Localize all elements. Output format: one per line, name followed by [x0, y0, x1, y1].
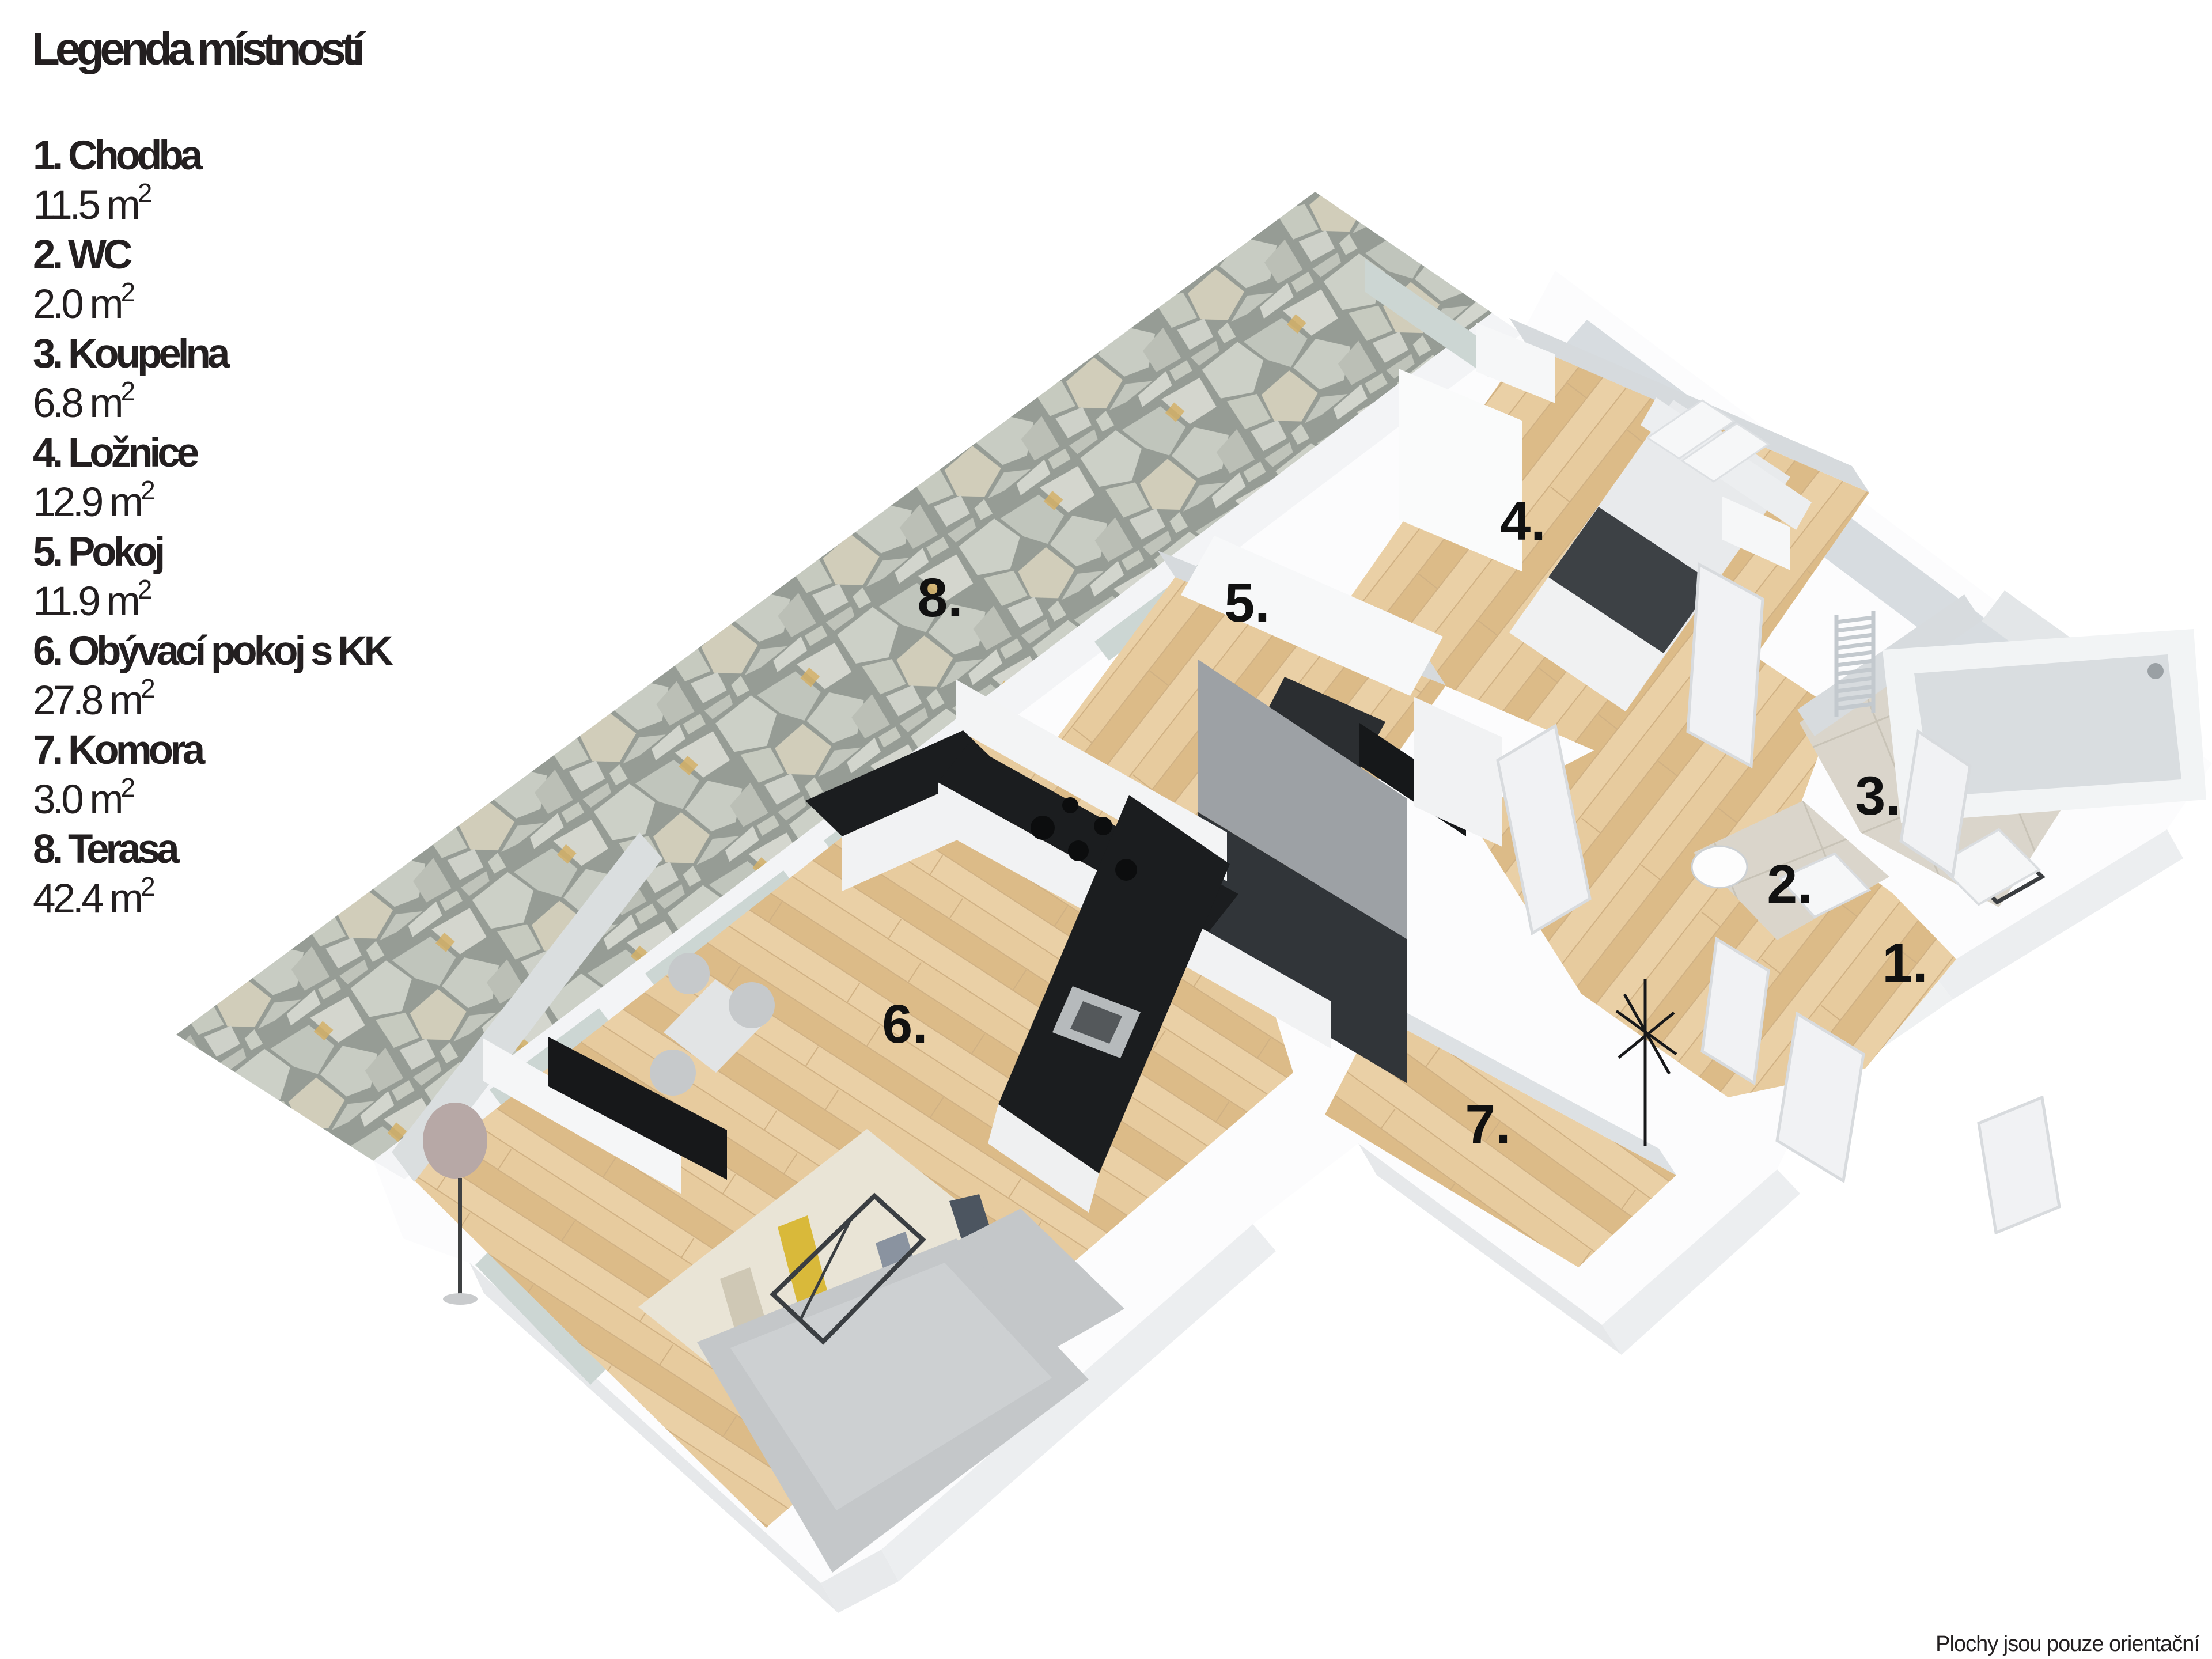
svg-text:2. WC: 2. WC — [33, 232, 132, 278]
svg-text:3. Koupelna: 3. Koupelna — [33, 331, 230, 377]
svg-text:Plochy jsou pouze orientační: Plochy jsou pouze orientační — [1935, 1632, 2200, 1656]
svg-text:5. Pokoj: 5. Pokoj — [33, 529, 163, 575]
svg-text:3.: 3. — [1855, 766, 1900, 827]
svg-text:11.9 m2: 11.9 m2 — [33, 574, 151, 624]
svg-text:5.: 5. — [1224, 573, 1270, 634]
svg-text:6.: 6. — [882, 994, 927, 1055]
svg-text:4. Ložnice: 4. Ložnice — [33, 430, 199, 476]
svg-text:6. Obývací pokoj s KK: 6. Obývací pokoj s KK — [33, 628, 393, 674]
svg-text:2.0 m2: 2.0 m2 — [33, 277, 135, 327]
svg-text:1.: 1. — [1882, 933, 1927, 994]
svg-text:3.0 m2: 3.0 m2 — [33, 772, 135, 823]
svg-text:7.: 7. — [1465, 1094, 1510, 1155]
svg-text:27.8 m2: 27.8 m2 — [33, 673, 154, 724]
svg-text:8.: 8. — [917, 567, 963, 628]
svg-text:6.8 m2: 6.8 m2 — [33, 376, 135, 426]
svg-text:7. Komora: 7. Komora — [33, 728, 206, 773]
svg-text:8. Terasa: 8. Terasa — [33, 827, 180, 872]
svg-text:Legenda místností: Legenda místností — [32, 23, 367, 74]
svg-text:1. Chodba: 1. Chodba — [33, 133, 203, 179]
svg-text:2.: 2. — [1767, 854, 1812, 915]
svg-text:4.: 4. — [1500, 491, 1546, 552]
svg-text:12.9 m2: 12.9 m2 — [33, 475, 154, 525]
svg-text:11.5 m2: 11.5 m2 — [33, 178, 151, 228]
svg-text:42.4 m2: 42.4 m2 — [33, 872, 154, 922]
